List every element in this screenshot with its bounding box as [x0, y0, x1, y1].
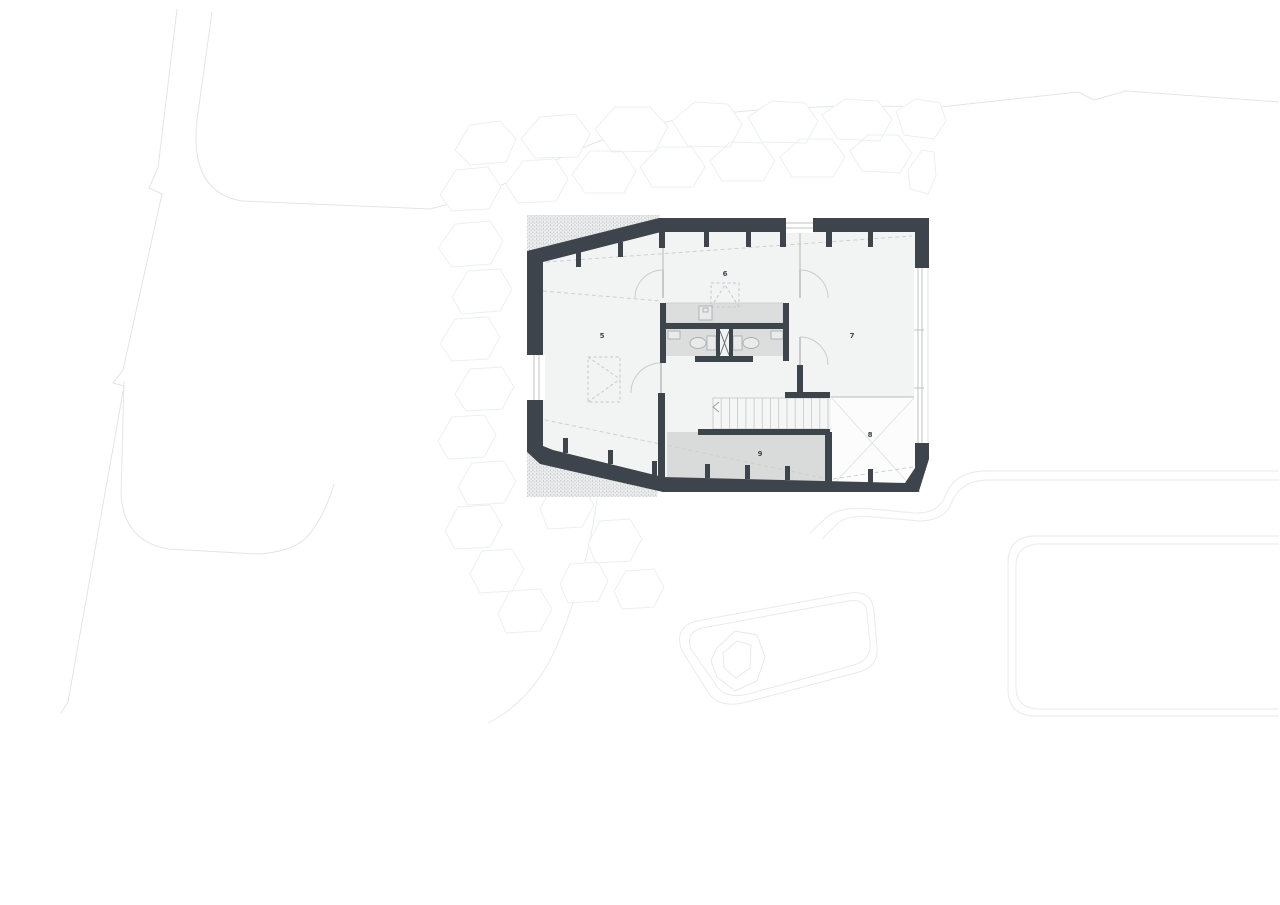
toilet-left-bowl — [690, 338, 706, 349]
rock-scatter — [540, 485, 664, 609]
sink-right — [771, 331, 783, 339]
window-left-opening — [526, 355, 545, 400]
toilet-right-tank — [733, 336, 742, 350]
window-top-opening — [786, 216, 813, 233]
pond-rock — [711, 631, 765, 691]
corridor-strip — [666, 303, 783, 323]
rock-band-top — [440, 99, 946, 211]
toilet-left-tank — [707, 336, 716, 350]
floor-plan-sheet: 5 6 7 8 9 — [0, 0, 1280, 905]
terrace-rect-outer — [1008, 536, 1279, 716]
terrace-rect-inner — [1016, 544, 1279, 709]
building: 5 6 7 8 9 — [526, 215, 930, 497]
toilet-right-bowl — [743, 338, 759, 349]
staircase — [713, 398, 828, 429]
sink-left — [668, 331, 680, 339]
room-8-label: 8 — [868, 431, 873, 439]
room-5-label: 5 — [600, 332, 605, 340]
floor-plan-drawing: 5 6 7 8 9 — [0, 0, 1280, 905]
room-9-label: 9 — [758, 450, 763, 458]
room-6-label: 6 — [723, 270, 728, 278]
road-branch-line — [121, 381, 334, 554]
room-7-label: 7 — [850, 332, 855, 340]
road-left-line — [61, 9, 177, 713]
pond-outline — [680, 593, 878, 705]
